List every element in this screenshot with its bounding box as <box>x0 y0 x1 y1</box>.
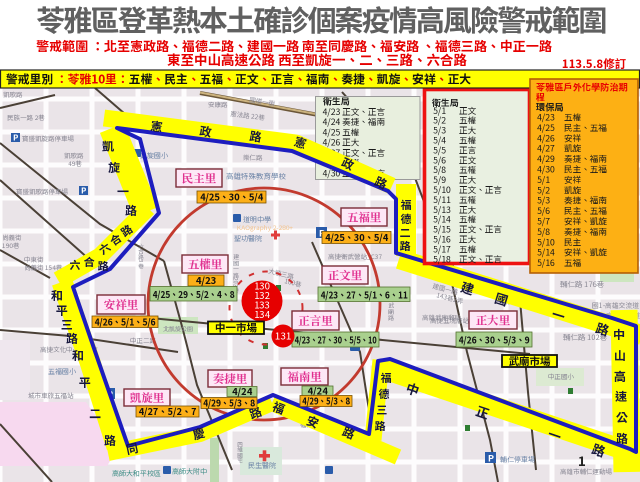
svg-text:高捷衛武營站_C37: 高捷衛武營站_C37 <box>328 251 382 261</box>
svg-text:六: 六 <box>70 257 81 273</box>
svg-text:寶盛凱旋路停車場: 寶盛凱旋路停車場 <box>22 133 75 143</box>
svg-text:4/25、30、5/4: 4/25、30、5/4 <box>200 190 263 204</box>
svg-text:1: 1 <box>578 451 586 470</box>
svg-text:寶盛凱歌路停車場: 寶盛凱歌路停車場 <box>16 186 69 196</box>
svg-text:正言里: 正言里 <box>298 313 333 329</box>
svg-text:輔仁路 176巷: 輔仁路 176巷 <box>560 279 605 290</box>
svg-text:高雄特殊教育學校: 高雄特殊教育學校 <box>226 171 286 182</box>
svg-text:民生醫院: 民生醫院 <box>248 461 276 471</box>
svg-text:苓雅區登革熱本土確診個案疫情高風險警戒範圍: 苓雅區登革熱本土確診個案疫情高風險警戒範圍 <box>36 0 605 40</box>
svg-text:4/26、5/1、5/6: 4/26、5/1、5/6 <box>95 315 156 329</box>
svg-text:高師大附中: 高師大附中 <box>172 467 207 477</box>
svg-text:4/23、27、5/1、6、11: 4/23、27、5/1、6、11 <box>321 287 408 301</box>
svg-text:三: 三 <box>377 402 388 418</box>
svg-text:國1-高雄交流道: 國1-高雄交流道 <box>592 300 639 310</box>
svg-text:五福里: 五福里 <box>347 210 382 226</box>
svg-text:路: 路 <box>400 238 412 254</box>
svg-text:134: 134 <box>254 307 270 321</box>
svg-text:中一市場: 中一市場 <box>215 321 257 336</box>
svg-text:和: 和 <box>72 347 84 364</box>
svg-text:190巷: 190巷 <box>2 240 20 250</box>
svg-text:二: 二 <box>89 405 101 422</box>
svg-text:山: 山 <box>614 347 626 364</box>
svg-text:一: 一 <box>117 183 129 200</box>
svg-text:福: 福 <box>381 370 392 386</box>
svg-text:高師大和平校區: 高師大和平校區 <box>112 469 161 479</box>
svg-text:旋: 旋 <box>108 159 120 176</box>
svg-text:5/18: 5/18 <box>433 253 451 265</box>
svg-text:尚義街 154巷: 尚義街 154巷 <box>24 262 63 272</box>
svg-text:路: 路 <box>98 258 110 274</box>
svg-text:五權里: 五權里 <box>188 257 223 273</box>
svg-text:路: 路 <box>248 127 262 146</box>
svg-text:武廟市場: 武廟市場 <box>509 354 551 369</box>
svg-text:中正國小: 中正國小 <box>548 371 575 381</box>
svg-text:武廟路: 武廟路 <box>387 302 396 321</box>
svg-text:路: 路 <box>616 430 628 447</box>
svg-text:六合路3巷: 六合路3巷 <box>137 243 145 268</box>
svg-text:4/26、30、5/3、9: 4/26、30、5/3、9 <box>459 333 530 347</box>
svg-text:路: 路 <box>104 432 116 449</box>
svg-text:49巷: 49巷 <box>68 158 82 168</box>
svg-text:五福國小: 五福國小 <box>48 367 76 377</box>
svg-text:福南里: 福南里 <box>287 369 322 385</box>
svg-text:民族一路 2巷: 民族一路 2巷 <box>7 112 45 122</box>
svg-text:正大里: 正大里 <box>476 313 511 329</box>
svg-text:輔仁停車場: 輔仁停車場 <box>500 455 535 465</box>
svg-text:五福: 五福 <box>564 257 582 269</box>
svg-text:平: 平 <box>79 374 91 391</box>
svg-text:路: 路 <box>66 330 78 347</box>
svg-text:東至中山高速公路 西至凱旋一、二、三路、六合路: 東至中山高速公路 西至凱旋一、二、三路、六合路 <box>167 49 468 69</box>
svg-text:安祥里: 安祥里 <box>104 297 139 313</box>
svg-text:4/25、30、5/4: 4/25、30、5/4 <box>325 230 388 244</box>
svg-text:高雄武廟郵局: 高雄武廟郵局 <box>422 312 461 322</box>
svg-text:路: 路 <box>375 418 387 434</box>
svg-text:高: 高 <box>614 368 626 385</box>
svg-text:P: P <box>13 133 18 144</box>
svg-text:警戒里別 ：苓雅10里：五權、民主、五福、正文、正言、福南、: 警戒里別 ：苓雅10里：五權、民主、五福、正文、正言、福南、奏捷、凱旋、安祥、正… <box>5 71 471 88</box>
svg-text:政: 政 <box>198 122 213 141</box>
svg-text:憲: 憲 <box>149 117 163 136</box>
svg-text:4/25、29、5/2、4、8: 4/25、29、5/2、4、8 <box>153 287 235 301</box>
svg-text:正文里: 正文里 <box>328 268 363 284</box>
svg-text:4/23: 4/23 <box>196 273 217 287</box>
svg-text:公: 公 <box>616 409 628 426</box>
svg-text:正文、正言: 正文、正言 <box>459 253 502 265</box>
svg-text:131: 131 <box>275 328 292 343</box>
svg-text:樂仁路: 樂仁路 <box>243 152 263 162</box>
svg-text:聖功醫院: 聖功醫院 <box>234 234 262 244</box>
svg-text:安康路: 安康路 <box>208 99 228 109</box>
svg-text:凱歌路: 凱歌路 <box>2 89 23 99</box>
svg-text:4/29、5/3、8: 4/29、5/3、8 <box>302 394 350 408</box>
svg-text:苓雅區戶外化學防治期: 苓雅區戶外化學防治期 <box>536 80 628 94</box>
svg-text:城市車旅五福站: 城市車旅五福站 <box>28 390 74 400</box>
svg-text:5/16: 5/16 <box>537 257 555 269</box>
svg-text:P: P <box>488 452 494 465</box>
svg-text:北凱旋公園: 北凱旋公園 <box>163 324 193 333</box>
svg-text:四維國宅: 四維國宅 <box>236 441 244 463</box>
svg-text:P: P <box>81 186 86 197</box>
svg-text:4/23、27、30、5/5、10: 4/23、27、30、5/5、10 <box>295 333 377 347</box>
svg-text:KAOgraphy 2-280+: KAOgraphy 2-280+ <box>237 222 293 232</box>
svg-text:高雄市輔仁運動場: 高雄市輔仁運動場 <box>560 466 613 476</box>
svg-text:民主里: 民主里 <box>182 171 217 187</box>
svg-text:合: 合 <box>84 254 96 270</box>
svg-text:路: 路 <box>125 202 137 219</box>
svg-text:中: 中 <box>613 326 625 343</box>
svg-text:4/27、5/2、7: 4/27、5/2、7 <box>139 404 197 418</box>
svg-text:速: 速 <box>615 388 627 405</box>
svg-text:4/29、5/3、8: 4/29、5/3、8 <box>203 396 255 410</box>
svg-text:德: 德 <box>379 386 391 402</box>
svg-text:凱: 凱 <box>102 138 115 155</box>
